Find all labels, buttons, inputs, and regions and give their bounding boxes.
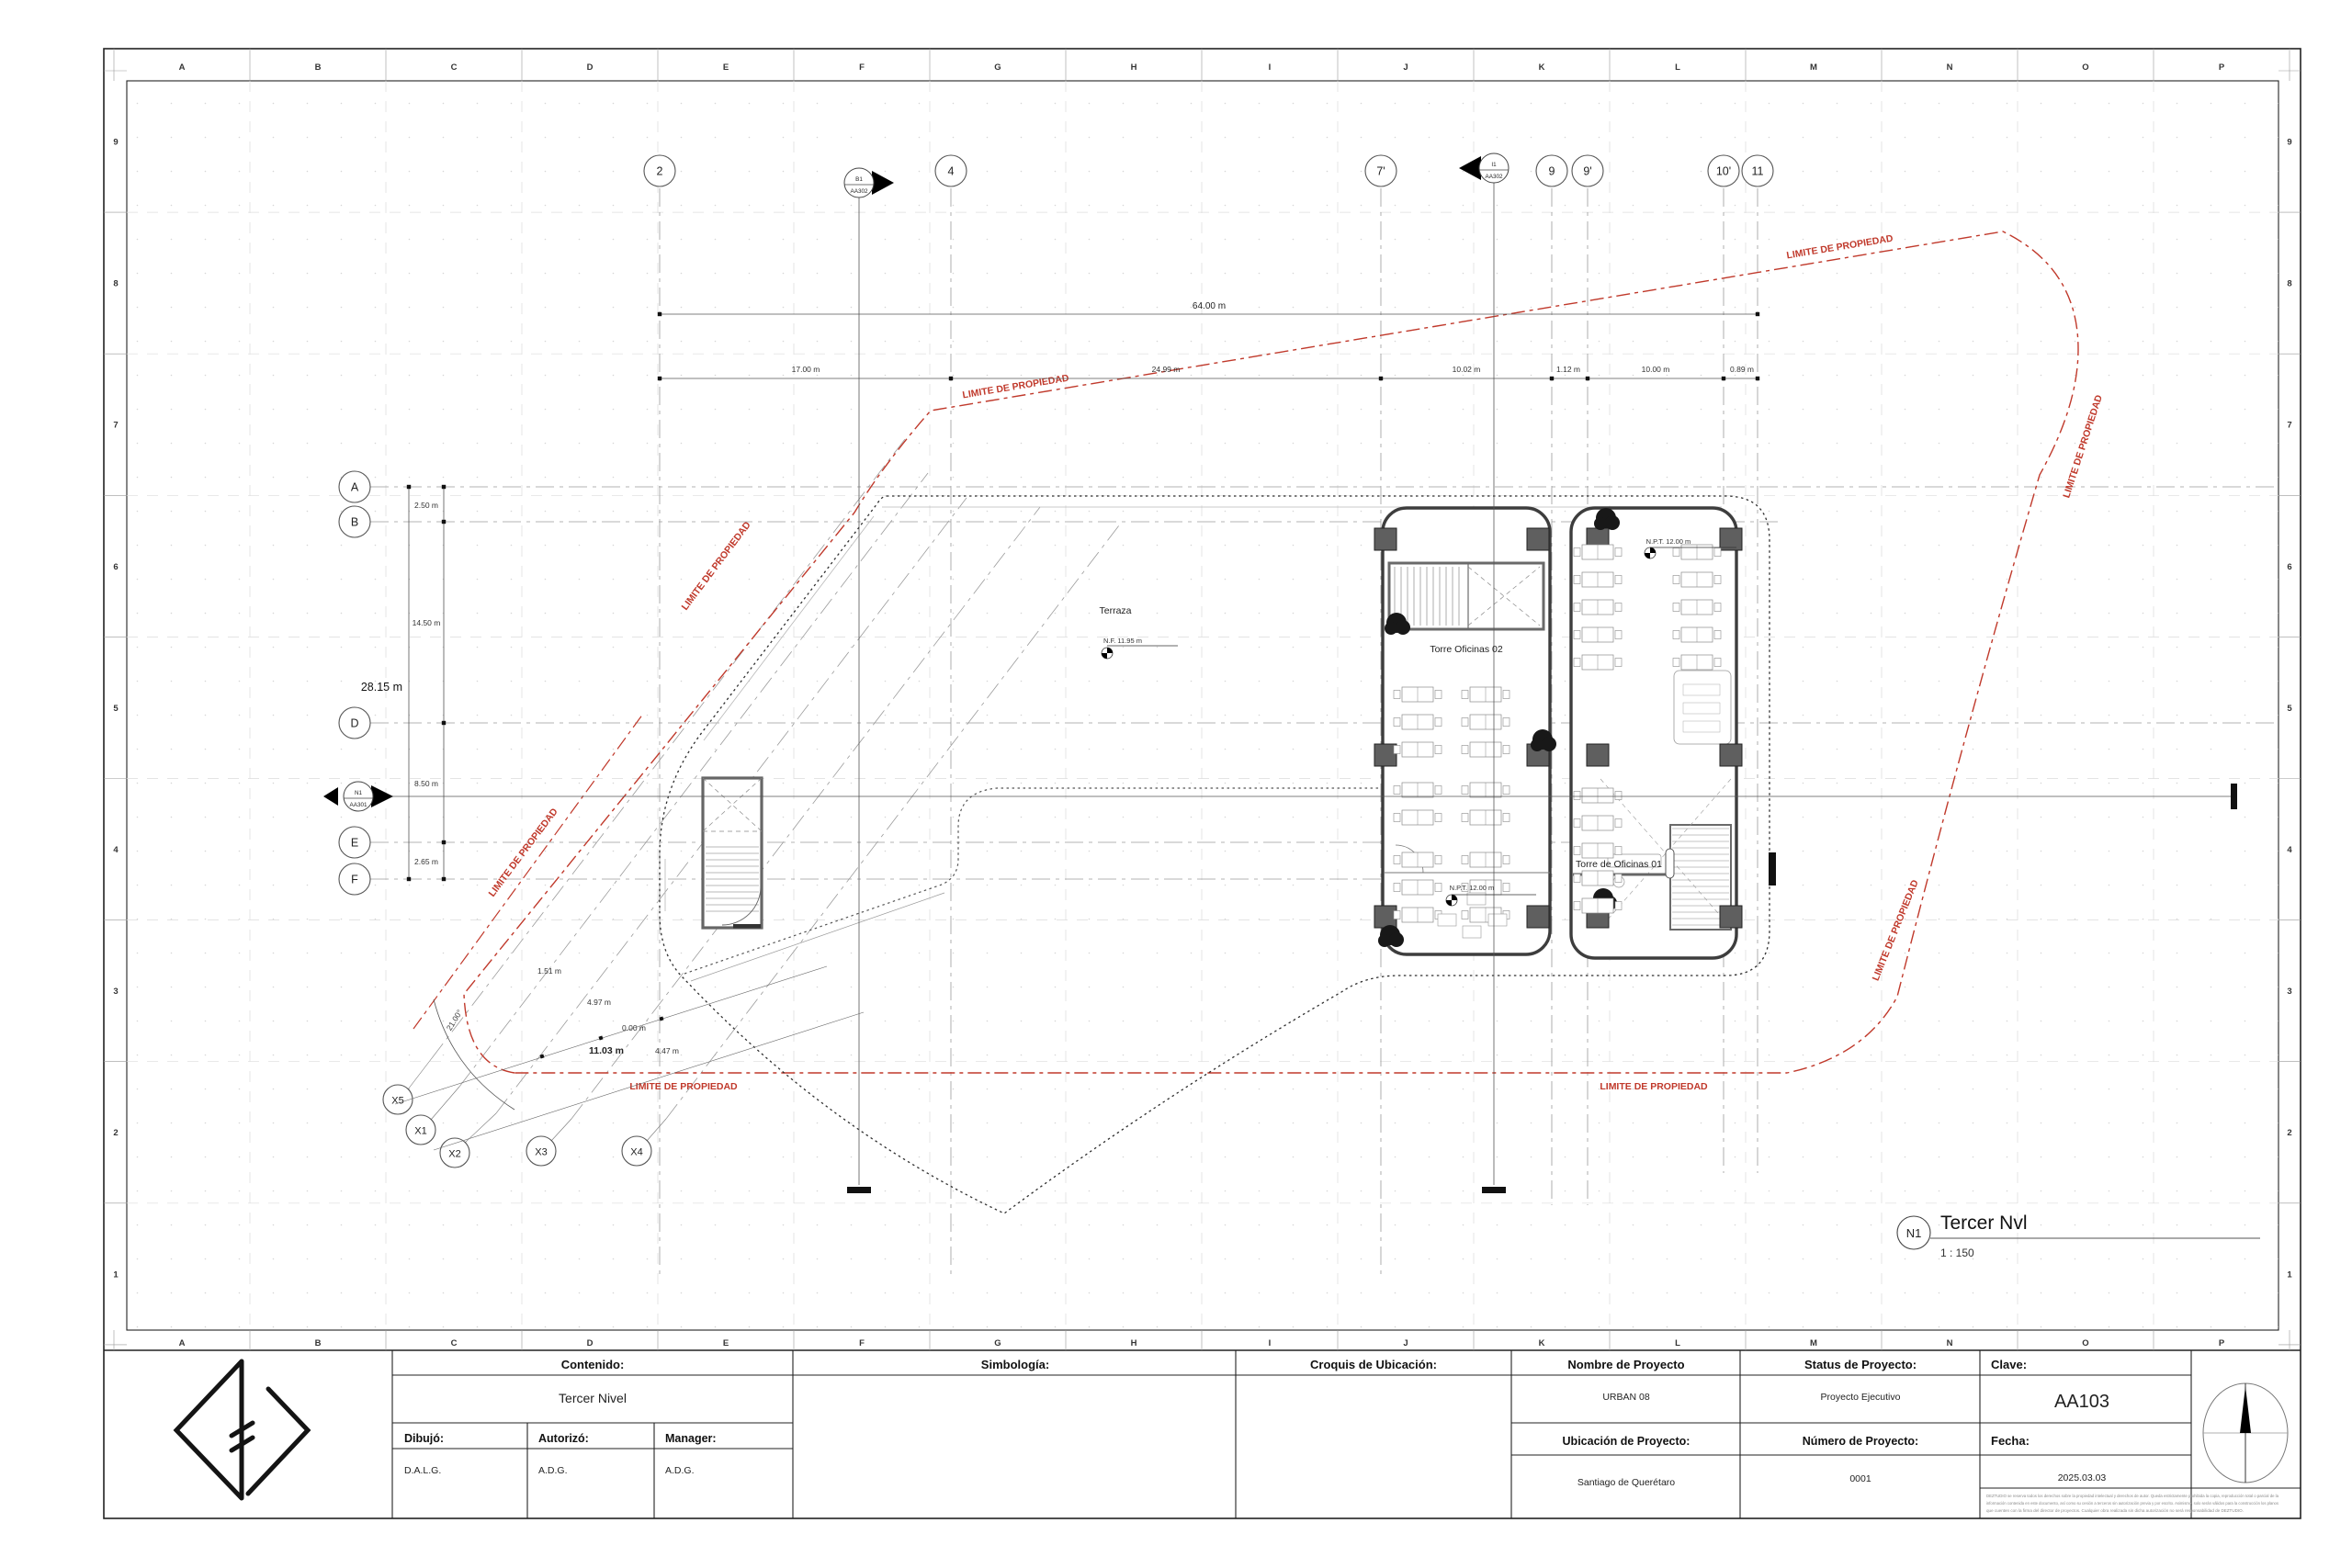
margin-letter: F (859, 62, 865, 73)
marker-i1-top: I1 (1491, 162, 1497, 168)
fecha-label: Fecha: (1991, 1434, 2030, 1448)
view-scale-text: 1 : 150 (1940, 1247, 1974, 1259)
margin-number: 8 (113, 279, 118, 289)
margin-number: 2 (113, 1128, 118, 1138)
ubicacion-value: Santiago de Querétaro (1577, 1477, 1675, 1488)
margin-letter: M (1810, 62, 1817, 73)
drawing-sheet: AABBCCDDEEFFGGHHIIJJKKLLMMNNOOPP99887766… (0, 0, 2352, 1568)
margin-letter: K (1539, 62, 1545, 73)
simbologia-label: Simbología: (981, 1358, 1049, 1371)
margin-letter: M (1810, 1338, 1817, 1348)
margin-letter: O (2082, 1338, 2088, 1348)
column (1720, 906, 1742, 928)
margin-letter: G (994, 1338, 1001, 1348)
margin-letter: E (723, 1338, 729, 1348)
margin-letter: I (1269, 62, 1272, 73)
grid-bubble-label: A (351, 480, 359, 493)
margin-number: 1 (2287, 1269, 2292, 1280)
dim-overall-top: 64.00 m (1193, 301, 1226, 311)
margin-letter: H (1131, 62, 1137, 73)
margin-number: 7 (2287, 421, 2291, 431)
column (1587, 744, 1609, 766)
disclaimer-line: que cuenten con la firma del director de… (1986, 1508, 2244, 1513)
column (1374, 744, 1396, 766)
marker-b1-bottom: AA302 (851, 188, 868, 195)
column (1527, 528, 1549, 550)
croquis-label: Croquis de Ubicación: (1310, 1358, 1437, 1371)
grid-bubble-label: 9 (1549, 164, 1555, 177)
autorizo-value: A.D.G. (538, 1465, 568, 1476)
numero-label: Número de Proyecto: (1803, 1435, 1918, 1448)
margin-number: 8 (2287, 279, 2291, 289)
margin-letter: E (723, 62, 729, 73)
margin-letter: L (1675, 62, 1680, 73)
contenido-value: Tercer Nivel (559, 1391, 627, 1405)
dim-top: 1.12 m (1556, 365, 1580, 374)
grid-bubble-label: 10' (1716, 164, 1731, 177)
dim-overall-left: 28.15 m (361, 681, 402, 694)
margin-letter: C (451, 62, 458, 73)
dim-top: 24.99 m (1152, 365, 1181, 374)
grid-bubble-label: 7' (1376, 164, 1385, 177)
margin-letter: N (1947, 1338, 1953, 1348)
margin-number: 2 (2287, 1128, 2291, 1138)
marker-b1-top: B1 (855, 176, 863, 183)
grid-bubble-label: B (351, 515, 358, 528)
marker-n1-top: N1 (355, 790, 363, 796)
grid-bubble-label: 4 (948, 164, 955, 177)
margin-number: 5 (2287, 704, 2292, 714)
margin-letter: B (315, 62, 322, 73)
dim-corner: 1.51 m (537, 966, 561, 976)
column (1374, 528, 1396, 550)
grid-bubble-label: X1 (414, 1125, 426, 1136)
margin-letter: N (1947, 62, 1953, 73)
dim-top: 10.00 m (1642, 365, 1670, 374)
margin-letter: I (1269, 1338, 1272, 1348)
grid-bubble-label: X4 (630, 1146, 642, 1157)
margin-number: 3 (2287, 987, 2291, 997)
grid-bubble-label: E (351, 836, 358, 849)
grid-bubble-label: X2 (448, 1148, 460, 1159)
margin-letter: P (2219, 1338, 2225, 1348)
grid-bubble-label: 2 (657, 164, 663, 177)
dim-corner: 11.03 m (589, 1045, 624, 1056)
dim-left: 2.50 m (414, 501, 438, 510)
margin-number: 3 (113, 987, 118, 997)
margin-number: 4 (2287, 845, 2292, 855)
margin-letter: J (1403, 62, 1408, 73)
view-title-text: Tercer Nvl (1940, 1213, 2028, 1234)
margin-letter: L (1675, 1338, 1680, 1348)
margin-letter: D (587, 62, 594, 73)
margin-number: 6 (2287, 562, 2291, 572)
terrace-stair-core (703, 778, 762, 929)
margin-number: 7 (113, 421, 118, 431)
clave-label: Clave: (1991, 1358, 2027, 1371)
ubicacion-label: Ubicación de Proyecto: (1563, 1435, 1690, 1448)
limite-label: LIMITE DE PROPIEDAD (629, 1081, 738, 1092)
margin-letter: A (179, 1338, 186, 1348)
north-compass-icon (2203, 1383, 2288, 1483)
limite-label: LIMITE DE PROPIEDAD (1600, 1081, 1708, 1092)
tower01-label: Torre de Oficinas 01 (1576, 859, 1662, 870)
margin-letter: H (1131, 1338, 1137, 1348)
margin-letter: J (1403, 1338, 1408, 1348)
tower02-label: Torre Oficinas 02 (1430, 644, 1503, 655)
grid-bubble-label: 9' (1583, 164, 1591, 177)
fecha-value: 2025.03.03 (2058, 1472, 2107, 1483)
dim-left: 2.65 m (414, 857, 438, 866)
manager-label: Manager: (665, 1432, 717, 1445)
marker-i1-bottom: AA302 (1486, 174, 1503, 180)
margin-letter: G (994, 62, 1001, 73)
margin-number: 4 (113, 845, 119, 855)
margin-letter: D (587, 1338, 594, 1348)
view-title-bubble: N1 (1906, 1226, 1922, 1240)
dim-top: 10.02 m (1453, 365, 1481, 374)
status-value: Proyecto Ejecutivo (1821, 1392, 1901, 1403)
margin-letter: A (179, 62, 186, 73)
company-logo (176, 1361, 308, 1498)
column (1527, 906, 1549, 928)
margin-letter: B (315, 1338, 322, 1348)
title-block: Contenido: Tercer Nivel Dibujó: Autorizó… (176, 1350, 2301, 1518)
terraza-level-label: N.F. 11.95 m (1103, 637, 1142, 645)
manager-value: A.D.G. (665, 1465, 695, 1476)
autorizo-label: Autorizó: (538, 1432, 589, 1445)
dibujo-value: D.A.L.G. (404, 1465, 441, 1476)
margin-letter: K (1539, 1338, 1545, 1348)
dim-left: 8.50 m (414, 779, 438, 788)
disclaimer-line: información contenida en este documento,… (1986, 1501, 2278, 1506)
column (1374, 906, 1396, 928)
margin-number: 1 (113, 1269, 119, 1280)
grid-bubble-label: 11 (1752, 164, 1764, 177)
grid-bubble-label: D (350, 716, 358, 729)
dibujo-label: Dibujó: (404, 1432, 444, 1445)
dim-corner: 4.47 m (655, 1046, 679, 1055)
nombre-value: URBAN 08 (1602, 1392, 1650, 1403)
marker-n1-bottom: AA301 (350, 802, 367, 808)
column (1720, 744, 1742, 766)
grid-bubble-label: F (351, 873, 358, 886)
dim-top: 0.89 m (1730, 365, 1754, 374)
grid-bubble-label: X3 (535, 1146, 547, 1157)
margin-letter: F (859, 1338, 865, 1348)
npt-label: N.P.T. 12.00 m (1450, 884, 1495, 892)
npt-label: N.P.T. 12.00 m (1646, 537, 1691, 546)
contenido-label: Contenido: (561, 1358, 625, 1371)
terraza-label: Terraza (1099, 605, 1131, 616)
margin-letter: P (2219, 62, 2225, 73)
dim-corner: 4.97 m (587, 998, 611, 1007)
status-label: Status de Proyecto: (1804, 1358, 1917, 1371)
plan-sheet-svg: AABBCCDDEEFFGGHHIIJJKKLLMMNNOOPP99887766… (0, 0, 2352, 1568)
disclaimer-line: DEZTUDIO se reserva todos los derechos s… (1986, 1494, 2279, 1498)
clave-value: AA103 (2054, 1392, 2109, 1412)
margin-letter: C (451, 1338, 458, 1348)
nombre-label: Nombre de Proyecto (1567, 1358, 1684, 1371)
margin-letter: O (2082, 62, 2088, 73)
margin-number: 6 (113, 562, 118, 572)
column (1720, 528, 1742, 550)
dim-top: 17.00 m (792, 365, 820, 374)
margin-number: 5 (113, 704, 119, 714)
dim-left: 14.50 m (413, 618, 441, 627)
margin-number: 9 (113, 138, 118, 148)
margin-number: 9 (2287, 138, 2291, 148)
numero-value: 0001 (1849, 1473, 1871, 1484)
grid-bubble-label: X5 (391, 1095, 403, 1106)
